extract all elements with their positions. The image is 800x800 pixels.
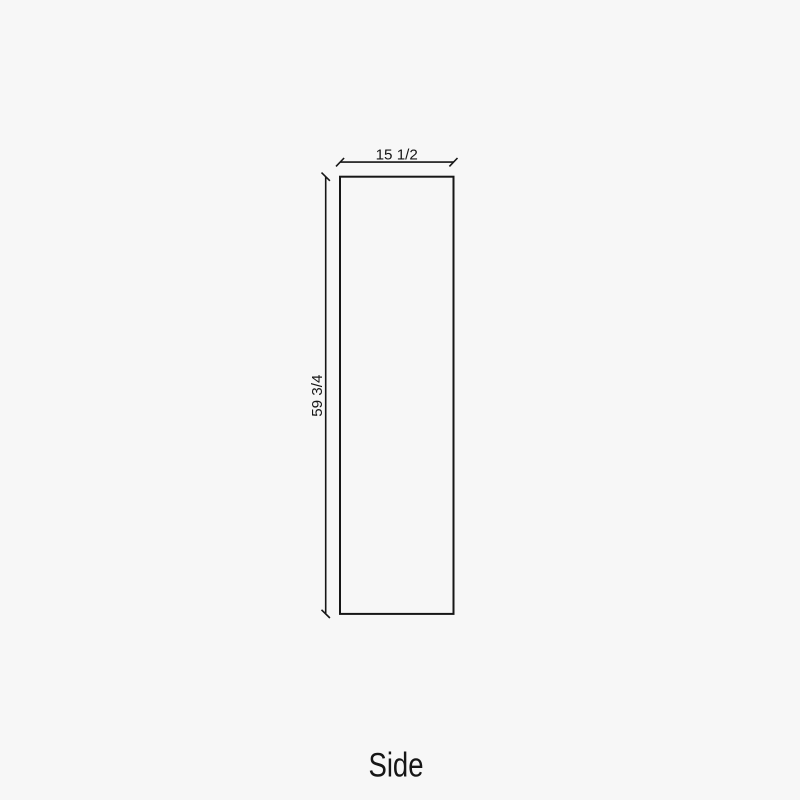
svg-text:15 1/2: 15 1/2	[376, 146, 418, 163]
svg-text:Side: Side	[369, 747, 424, 785]
svg-text:59 3/4: 59 3/4	[309, 375, 326, 417]
